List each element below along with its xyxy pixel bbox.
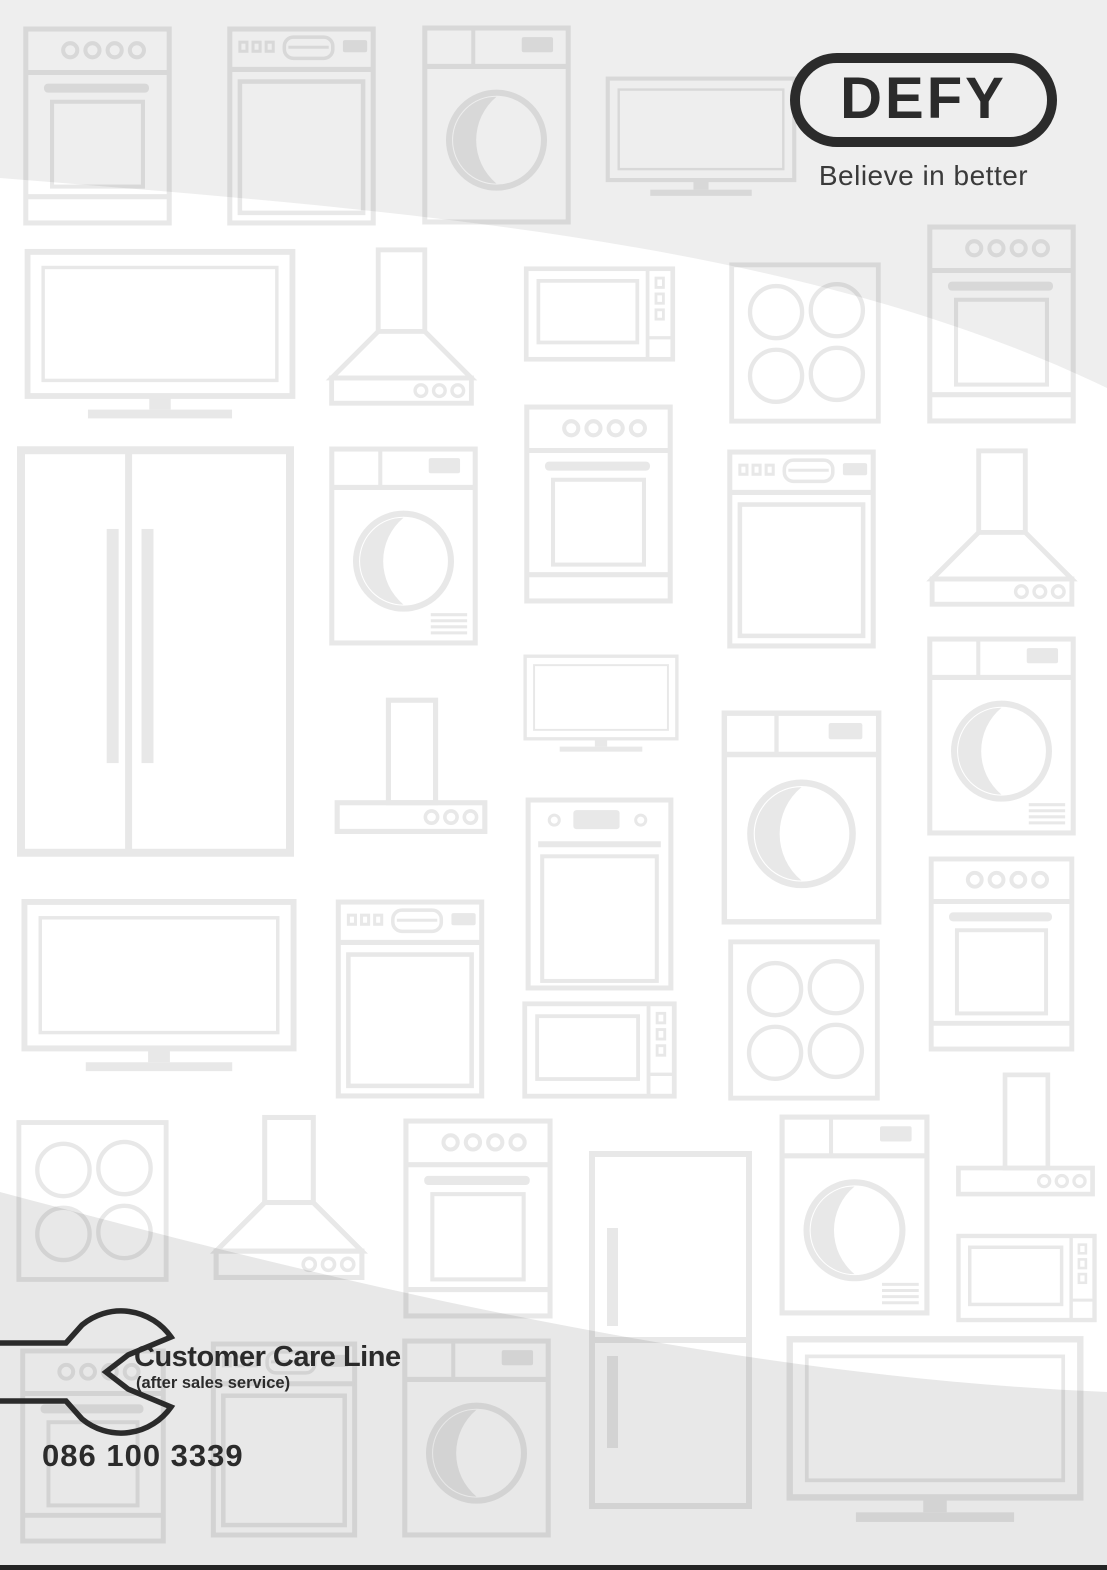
logo-tagline: Believe in better [790,160,1057,192]
manual-back-cover: DEFY Believe in better Customer Care Lin… [0,0,1107,1570]
stove-appliance-icon [931,859,1072,1049]
defy-logo: DEFY [790,53,1057,147]
micro-appliance-icon [958,1236,1094,1320]
footer-bar [0,1565,1107,1570]
hob-appliance-icon [731,942,878,1098]
dryer-appliance-icon [782,1117,927,1313]
tv-appliance-icon [24,902,293,1071]
fridgesbs-appliance-icon [21,450,290,853]
customer-care-phone: 086 100 3339 [42,1438,244,1474]
tv-appliance-icon [28,252,293,418]
washer-appliance-icon [724,713,878,922]
micro-appliance-icon [525,1004,675,1096]
hood-appliance-icon [932,451,1072,604]
dryer-appliance-icon [332,449,475,643]
dryer-appliance-icon [930,639,1073,833]
customer-care-subtitle: (after sales service) [136,1374,290,1393]
hood-appliance-icon [332,250,472,403]
tv-appliance-icon [525,656,677,751]
customer-care-title: Customer Care Line [134,1341,401,1374]
ovenwall-appliance-icon [528,800,671,988]
stove-appliance-icon [406,1121,550,1316]
defy-wordmark: DEFY [840,65,1007,132]
hoodwall-appliance-icon [958,1075,1092,1194]
dishwasher-appliance-icon [730,452,873,646]
dishwasher-appliance-icon [338,902,481,1096]
stove-appliance-icon [527,407,670,601]
hood-appliance-icon [216,1117,362,1277]
hoodwall-appliance-icon [337,700,485,831]
micro-appliance-icon [526,269,673,360]
